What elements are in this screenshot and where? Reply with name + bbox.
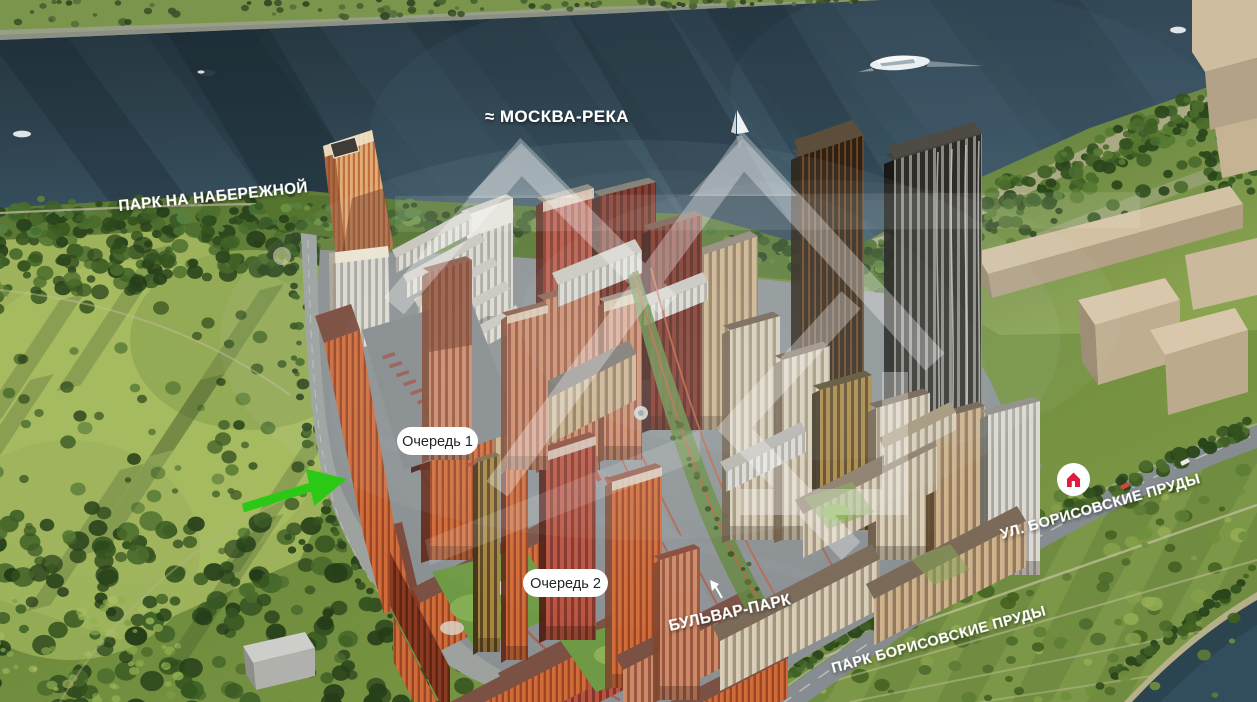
svg-text:≈ МОСКВА-РЕКА: ≈ МОСКВА-РЕКА bbox=[485, 107, 629, 126]
svg-text:Очередь 2: Очередь 2 bbox=[530, 576, 601, 592]
svg-text:Очередь 1: Очередь 1 bbox=[402, 434, 473, 450]
